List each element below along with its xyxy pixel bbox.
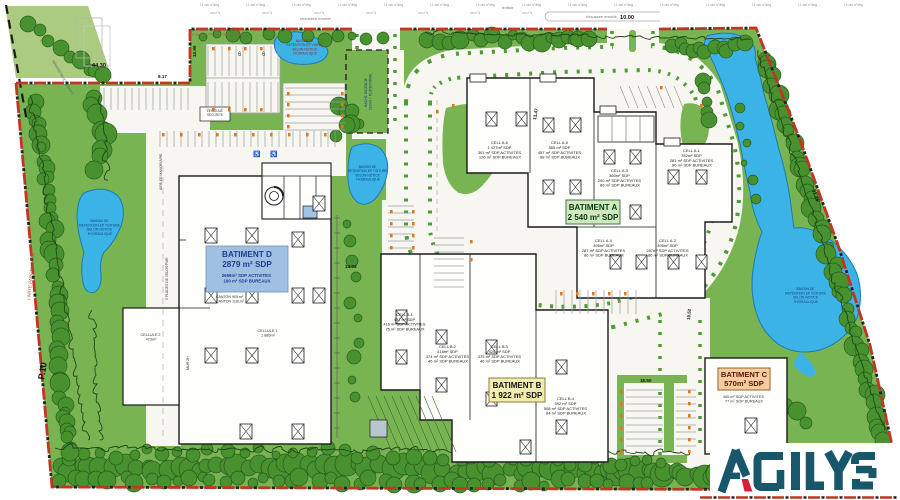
svg-text:12.86: 12.86 <box>192 45 197 57</box>
svg-text:l.t. om n°deg: l.t. om n°deg <box>660 3 679 7</box>
svg-text:18.50: 18.50 <box>640 378 652 383</box>
svg-text:2 540 m² SDP: 2 540 m² SDP <box>568 213 619 222</box>
svg-text:BATIMENT D: BATIMENT D <box>222 250 272 259</box>
svg-text:460 m² SDP ACTIVITES 77 m² SDP: 460 m² SDP ACTIVITES 77 m² SDP BUREAUX <box>723 395 765 404</box>
svg-text:om n°d: om n°d <box>262 11 272 15</box>
svg-text:l.t. om n°deg: l.t. om n°deg <box>292 3 311 7</box>
svg-text:l.t. om n°deg: l.t. om n°deg <box>476 3 495 7</box>
svg-text:44.30: 44.30 <box>92 63 106 69</box>
svg-text:l.t. om n°deg: l.t. om n°deg <box>200 3 219 7</box>
svg-text:CANTON 905 m² CANTON 1181m²: CANTON 905 m² CANTON 1181m² <box>216 295 245 304</box>
svg-text:♿: ♿ <box>270 150 278 158</box>
svg-text:14.03: 14.03 <box>345 264 357 269</box>
svg-text:chaussée enrobé: chaussée enrobé <box>300 16 331 21</box>
svg-text:10.00: 10.00 <box>620 15 634 21</box>
svg-text:19.52: 19.52 <box>686 308 692 320</box>
svg-text:om n°d: om n°d <box>522 11 532 15</box>
svg-text:chaussée enrobé: chaussée enrobé <box>586 14 617 19</box>
svg-text:l.t. om n°deg: l.t. om n°deg <box>522 3 541 7</box>
svg-text:om n°d: om n°d <box>470 11 480 15</box>
svg-text:1 922 m² SDP: 1 922 m² SDP <box>492 391 543 400</box>
svg-text:l.t. om n°deg: l.t. om n°deg <box>246 3 265 7</box>
svg-text:570m² SDP: 570m² SDP <box>724 379 764 388</box>
svg-text:om n°d: om n°d <box>314 11 324 15</box>
svg-text:l.t. om n°deg: l.t. om n°deg <box>614 3 633 7</box>
svg-text:om n°d: om n°d <box>210 11 220 15</box>
svg-text:l.t. om n°deg: l.t. om n°deg <box>384 3 403 7</box>
svg-text:BATIMENT B: BATIMENT B <box>493 381 542 390</box>
svg-text:l.t. om n°deg: l.t. om n°deg <box>568 3 587 7</box>
svg-text:l.t. om n°deg: l.t. om n°deg <box>338 3 357 7</box>
svg-text:om n°d: om n°d <box>366 11 376 15</box>
svg-text:8.17: 8.17 <box>158 74 167 79</box>
svg-text:2659m² SDP ACTIVITES 190 m² SD: 2659m² SDP ACTIVITES 190 m² SDP BUREAUX <box>222 273 273 283</box>
svg-text:l.t. om n°deg: l.t. om n°deg <box>706 3 725 7</box>
svg-text:BACHE INCENDIE 120m3 + PLATEFO: BACHE INCENDIE 120m3 + PLATEFORME <box>364 73 372 111</box>
svg-text:trottoir: trottoir <box>502 5 514 10</box>
svg-text:2879 m² SDP: 2879 m² SDP <box>222 260 272 269</box>
svg-text:l.t. om n°deg: l.t. om n°deg <box>798 3 817 7</box>
svg-text:BATIMENT A: BATIMENT A <box>569 203 618 212</box>
svg-text:l.t. om n°deg: l.t. om n°deg <box>752 3 771 7</box>
svg-text:l.t. om n°deg: l.t. om n°deg <box>844 3 863 7</box>
svg-text:5 PLACES DE VELOS PMR: 5 PLACES DE VELOS PMR <box>165 257 169 300</box>
svg-text:om n°d: om n°d <box>418 11 428 15</box>
svg-text:AIRE DE MANOEUVRE: AIRE DE MANOEUVRE <box>159 153 163 190</box>
svg-text:♿: ♿ <box>253 150 261 158</box>
svg-text:MUR 2H: MUR 2H <box>186 356 190 370</box>
svg-text:BATIMENT C: BATIMENT C <box>721 370 768 379</box>
svg-text:l.t. om n°deg: l.t. om n°deg <box>430 3 449 7</box>
